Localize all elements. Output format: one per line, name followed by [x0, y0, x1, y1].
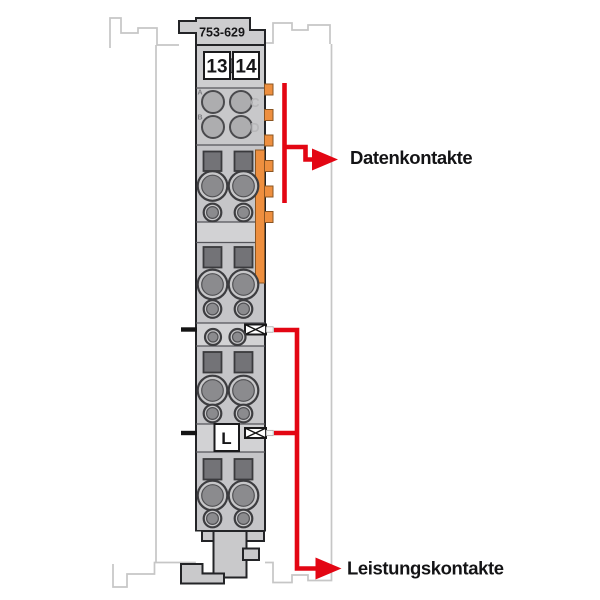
power-jumper-left-contact-icon: [181, 327, 197, 331]
release-port: [235, 300, 253, 318]
clamp-opening: [204, 152, 222, 172]
power-contacts-label: Leistungskontakte: [347, 558, 504, 579]
data-contact-tab: [265, 110, 274, 121]
wire-port: [198, 481, 228, 511]
arrowhead-icon: [316, 558, 342, 580]
release-port: [204, 405, 222, 423]
release-port: [204, 204, 222, 222]
data-contacts-label: Datenkontakte: [350, 147, 472, 168]
jumper-port: [205, 329, 221, 345]
release-port: [235, 204, 253, 222]
module-diagram: 753-629 13 14: [0, 0, 600, 600]
clamp-opening: [204, 459, 222, 480]
wire-port: [229, 171, 259, 201]
clamp-opening: [204, 247, 222, 268]
power-jumper-left-contact-icon: [181, 431, 197, 435]
port-a-label: A: [198, 90, 203, 97]
wire-port: [229, 481, 259, 511]
arrowhead-icon: [312, 149, 338, 171]
power-contacts-annotation: Leistungskontakte: [274, 330, 504, 580]
foot-step: [247, 531, 265, 541]
power-contacts-bracket-line: [274, 330, 316, 569]
data-contact-strip: [256, 150, 265, 283]
terminal-14-label: 14: [235, 57, 257, 78]
release-port: [204, 510, 222, 528]
wire-port: [229, 270, 259, 300]
data-contact-tab: [265, 212, 274, 223]
part-number-label: 753-629: [199, 26, 245, 40]
clamp-opening: [235, 152, 253, 172]
data-contacts-annotation: Datenkontakte: [285, 83, 473, 203]
data-contact-tab: [265, 161, 274, 172]
release-port: [235, 510, 253, 528]
ghost-top-left-outline: [110, 18, 179, 48]
release-port: [235, 405, 253, 423]
clamp-opening: [204, 352, 222, 373]
wire-port: [198, 270, 228, 300]
gap-row-bg: [197, 222, 264, 243]
diagram-canvas: 753-629 13 14: [0, 0, 600, 600]
bus-module: 753-629 13 14: [179, 18, 273, 584]
port-c-label: C: [251, 96, 260, 110]
power-terminal-label: L: [221, 429, 231, 448]
port-b-label: B: [198, 115, 203, 122]
foot-step: [243, 549, 259, 561]
wire-port: [198, 171, 228, 201]
wire-port: [229, 376, 259, 406]
contact-nub: [266, 327, 273, 332]
data-contact-tab: [265, 135, 274, 146]
clamp-opening: [235, 459, 253, 480]
foot-step: [202, 531, 214, 541]
clamp-opening: [235, 247, 253, 268]
clamp-opening: [235, 352, 253, 373]
data-contact-tab: [265, 84, 274, 95]
data-contact-tab: [265, 186, 274, 197]
wire-port: [198, 376, 228, 406]
foot-block: [214, 531, 247, 578]
terminal-13-label: 13: [206, 57, 227, 78]
jumper-port: [230, 329, 246, 345]
ghost-top-right-outline: [265, 23, 330, 44]
release-port: [204, 300, 222, 318]
contact-nub: [266, 430, 273, 435]
data-contacts-arrow-line: [285, 147, 313, 160]
data-port-c: [230, 91, 252, 113]
data-port-d: [230, 116, 252, 138]
data-port-a: [202, 91, 224, 113]
din-rail-foot: [181, 531, 264, 584]
data-port-b: [202, 116, 224, 138]
port-d-label: D: [251, 121, 260, 135]
